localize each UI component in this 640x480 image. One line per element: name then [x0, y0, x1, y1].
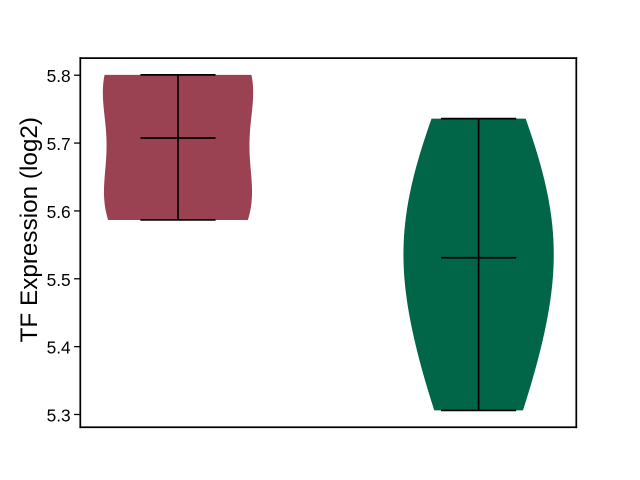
svg-text:5.6: 5.6 [47, 202, 71, 222]
svg-text:5.7: 5.7 [47, 134, 71, 154]
svg-text:5.8: 5.8 [47, 66, 71, 86]
svg-text:5.3: 5.3 [47, 406, 71, 426]
svg-text:5.4: 5.4 [47, 338, 71, 358]
svg-text:5.5: 5.5 [47, 270, 71, 290]
svg-text:TF Expression (log2): TF Expression (log2) [16, 117, 43, 342]
